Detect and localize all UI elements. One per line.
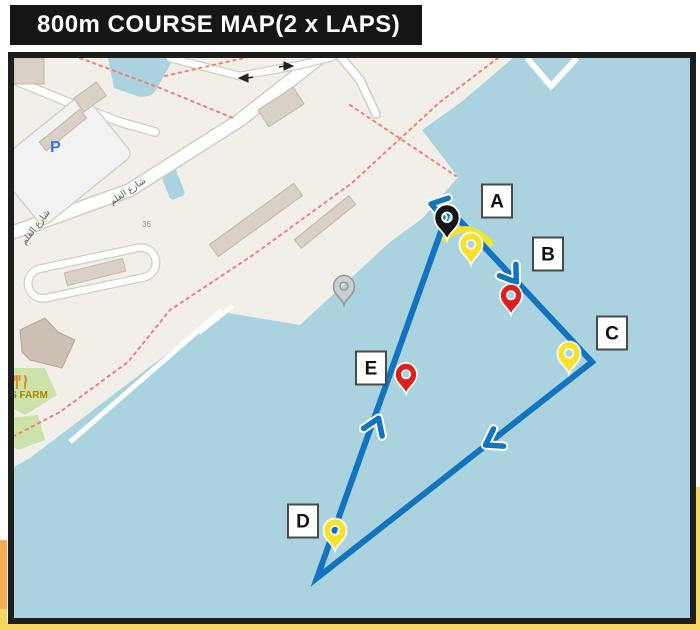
farm-poi-label: S FARM	[10, 390, 48, 401]
parking-p-label: P	[50, 139, 61, 156]
course-point-label-D: D	[296, 512, 310, 533]
course-point-label-C: C	[605, 324, 619, 345]
house-number-label: 36	[142, 220, 151, 229]
course-map-page: P شارع القلم شارع القلم 36 S FARM ABCDE …	[0, 0, 700, 630]
course-point-label-B: B	[541, 245, 555, 266]
accent-orange-strip	[0, 540, 7, 609]
title-bar: 800m COURSE MAP(2 x LAPS)	[10, 5, 422, 45]
course-point-label-A: A	[490, 192, 504, 213]
course-point-label-E: E	[365, 359, 378, 380]
map-canvas: P شارع القلم شارع القلم 36 S FARM ABCDE	[0, 0, 700, 630]
page-title: 800m COURSE MAP(2 x LAPS)	[10, 11, 400, 39]
